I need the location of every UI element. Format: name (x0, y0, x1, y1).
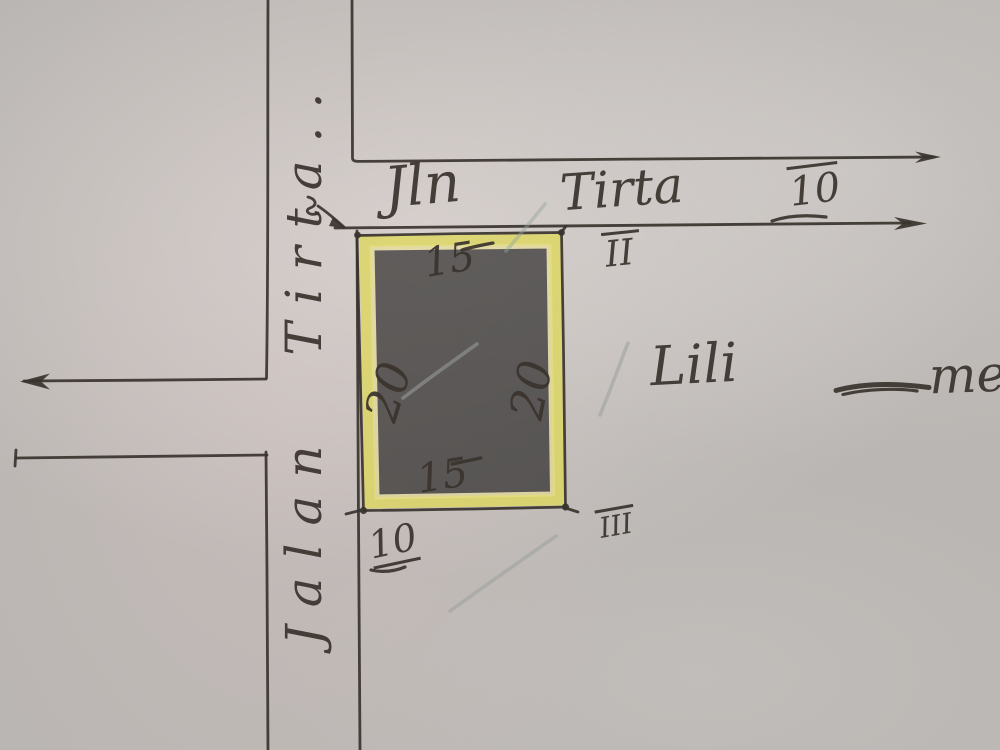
street-label-number: 10 (786, 161, 842, 213)
parcel-numeral-iii: III (594, 504, 638, 543)
street-number-underline-swash (772, 216, 826, 221)
owner-name-tail: me (928, 349, 1000, 402)
street-label-jln: Jln (382, 155, 463, 217)
plot-dimension-bottom: 15 (414, 452, 471, 499)
west-street-top-edge (24, 379, 266, 381)
west-street-end-tick (15, 450, 16, 466)
plot-corner-top-left (354, 232, 361, 239)
plot-dimension-top: 15 (421, 236, 478, 283)
vertical-road-left-edge-upper (267, 0, 269, 378)
street-label-tirta: Tirta (558, 160, 684, 218)
pencil-stroke-near-name (600, 343, 628, 415)
west-street-bottom-edge (17, 455, 267, 458)
vertical-road-left-edge-lower (266, 452, 268, 750)
pencil-stroke-below-plot (450, 536, 556, 611)
vertical-street-label: Jalan Tirta.. (279, 70, 339, 650)
sketch-drawing (0, 0, 1000, 750)
name-long-dash-second-stroke (843, 389, 917, 394)
street-bottom-edge (335, 223, 910, 228)
vertical-road-right-edge-and-street-top-edge (352, 0, 934, 161)
land-sketch-paper: Jln Tirta 10 II Jalan Tirta.. 15 20 20 1… (0, 0, 1000, 750)
parcel-numeral-ii: II (601, 229, 644, 274)
owner-name: Lili (649, 336, 739, 395)
